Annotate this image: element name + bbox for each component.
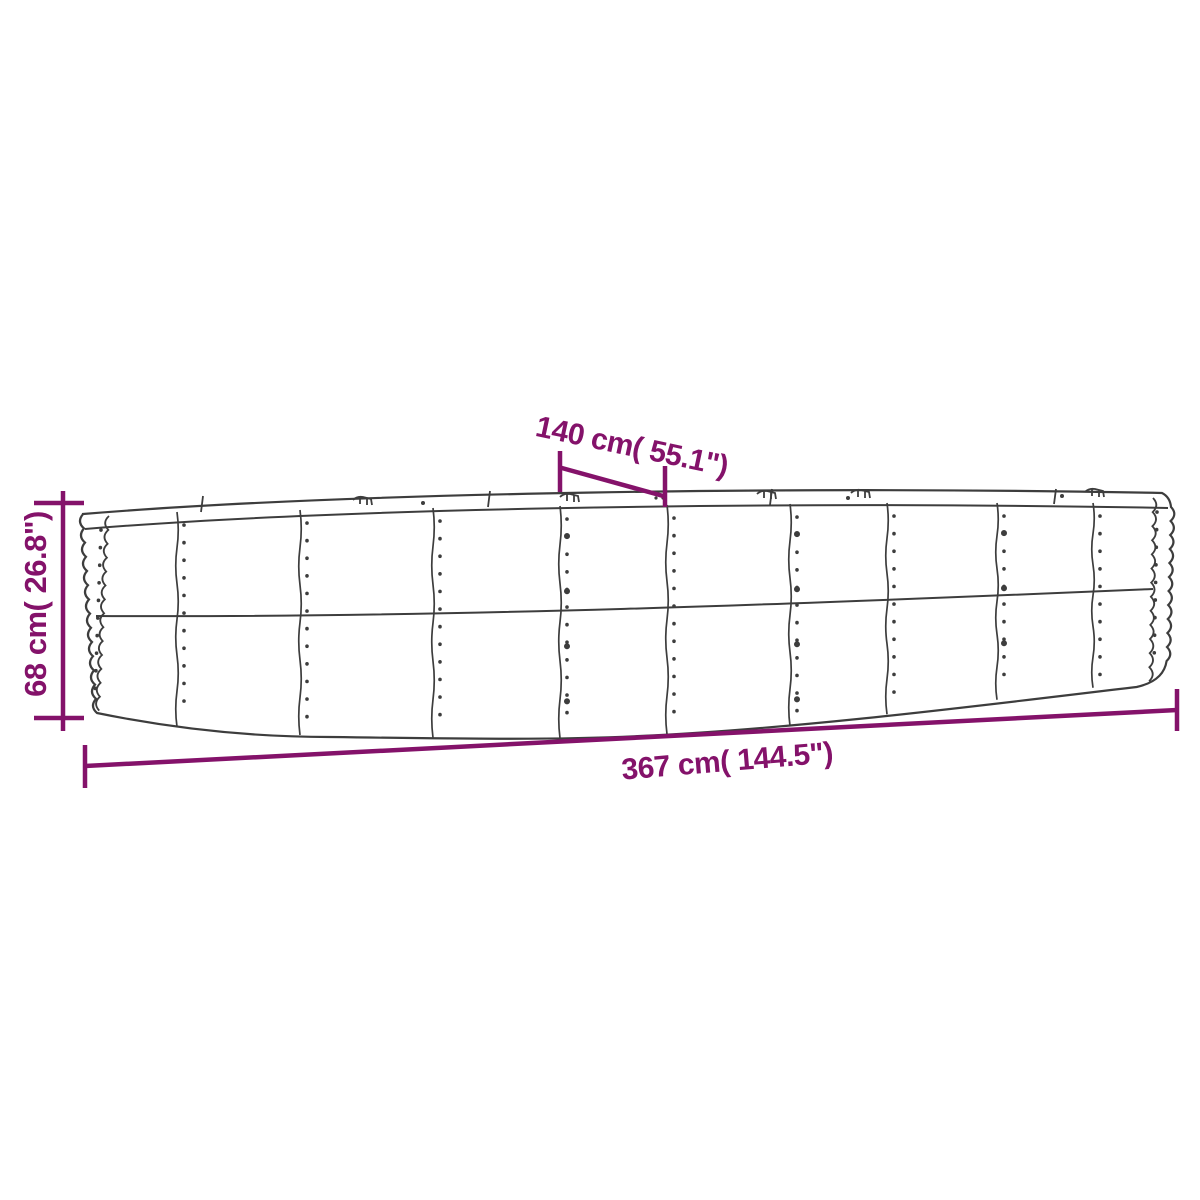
- depth-dimension-label: 140 cm( 55.1"): [533, 410, 731, 483]
- height-dimension-label: 68 cm( 26.8"): [18, 511, 53, 697]
- product-dimension-diagram: 140 cm( 55.1") 68 cm( 26.8") 367 cm( 144…: [0, 0, 1200, 1200]
- rim-rivet: [654, 496, 657, 499]
- rim-rivet: [421, 501, 425, 505]
- planter-drawing: [80, 489, 1174, 739]
- planter-outline: [80, 490, 1174, 739]
- length-dimension-label: 367 cm( 144.5"): [620, 736, 834, 786]
- planter-diagram-canvas: 140 cm( 55.1") 68 cm( 26.8") 367 cm( 144…: [0, 0, 1200, 1200]
- rim-rivet: [1060, 494, 1064, 498]
- rim-rivet: [846, 496, 850, 500]
